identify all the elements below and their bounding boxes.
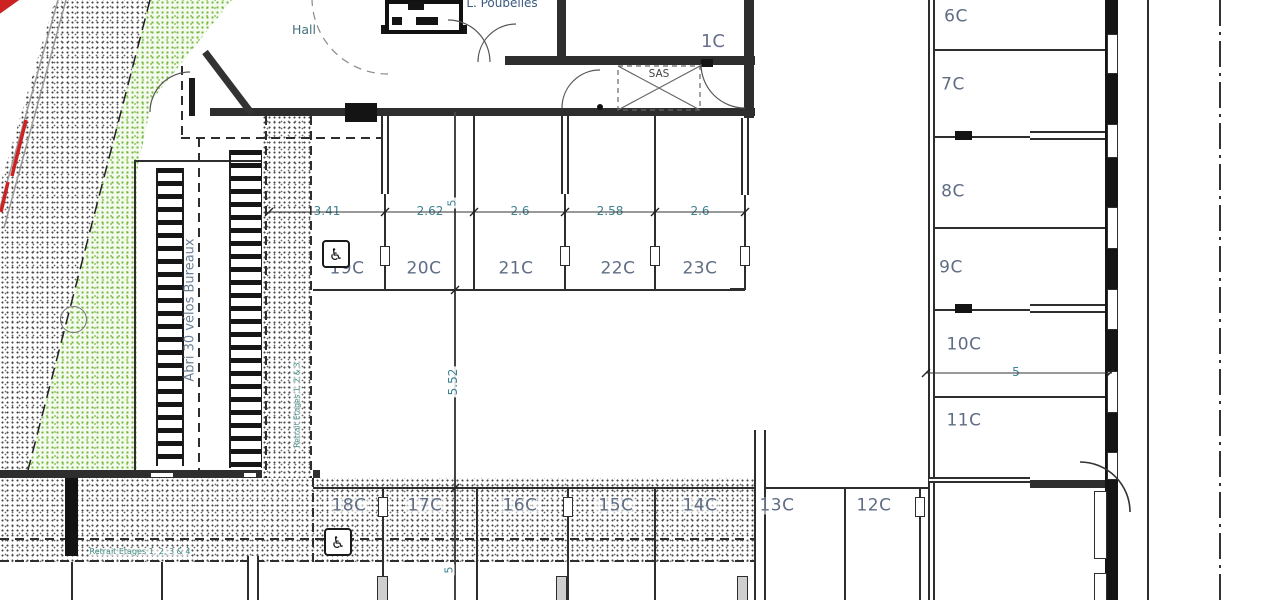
parking-floor-plan: Abri 30 vélos Bureaux Retrait Etages 1, …	[0, 0, 1280, 600]
plan-linework	[0, 0, 1280, 600]
red-boundary-dash	[1, 120, 26, 212]
door-arc	[478, 24, 516, 62]
path-edge	[0, 0, 58, 222]
dimension-ticks	[265, 208, 1114, 492]
door-leaf	[189, 78, 195, 116]
door-arc	[150, 72, 190, 112]
door-arc	[562, 70, 600, 108]
door-arc	[701, 64, 745, 108]
door-swing-dashed	[312, 0, 388, 74]
diagonal-wall	[205, 52, 252, 114]
path-edge	[4, 0, 66, 228]
door-arc	[1080, 462, 1130, 512]
sas-box	[618, 66, 700, 110]
door-hinge	[597, 104, 603, 110]
red-boundary-mark	[0, 0, 22, 15]
dimension-line	[269, 212, 1112, 373]
